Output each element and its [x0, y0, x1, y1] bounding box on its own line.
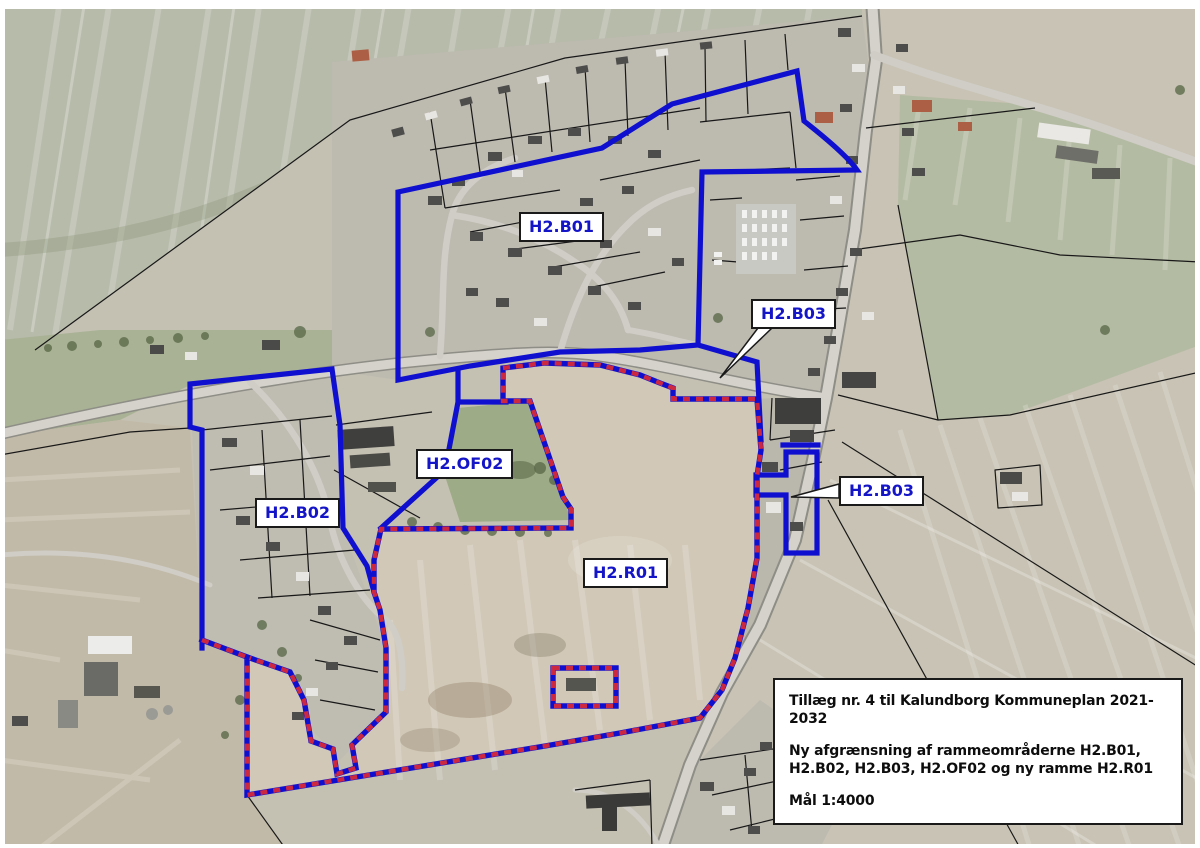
- info-description-line1: Ny afgrænsning af rammeområderne H2.B01,: [789, 743, 1167, 761]
- info-description-line2: H2.B02, H2.B03, H2.OF02 og ny ramme H2.R…: [789, 761, 1167, 779]
- region-label-h2b02: H2.B02: [255, 498, 340, 528]
- region-label-h2b03-right: H2.B03: [839, 476, 924, 506]
- region-label-h2r01: H2.R01: [583, 558, 668, 588]
- info-scale: Mål 1:4000: [789, 793, 1167, 811]
- region-label-h2b01: H2.B01: [519, 212, 604, 242]
- region-label-h2of02: H2.OF02: [416, 449, 513, 479]
- info-box: Tillæg nr. 4 til Kalundborg Kommuneplan …: [773, 678, 1183, 825]
- map-page: H2.B01 H2.B03 H2.OF02 H2.B02 H2.R01 H2.B…: [0, 0, 1200, 848]
- region-label-h2b03-top: H2.B03: [751, 299, 836, 329]
- info-title: Tillæg nr. 4 til Kalundborg Kommuneplan …: [789, 693, 1167, 728]
